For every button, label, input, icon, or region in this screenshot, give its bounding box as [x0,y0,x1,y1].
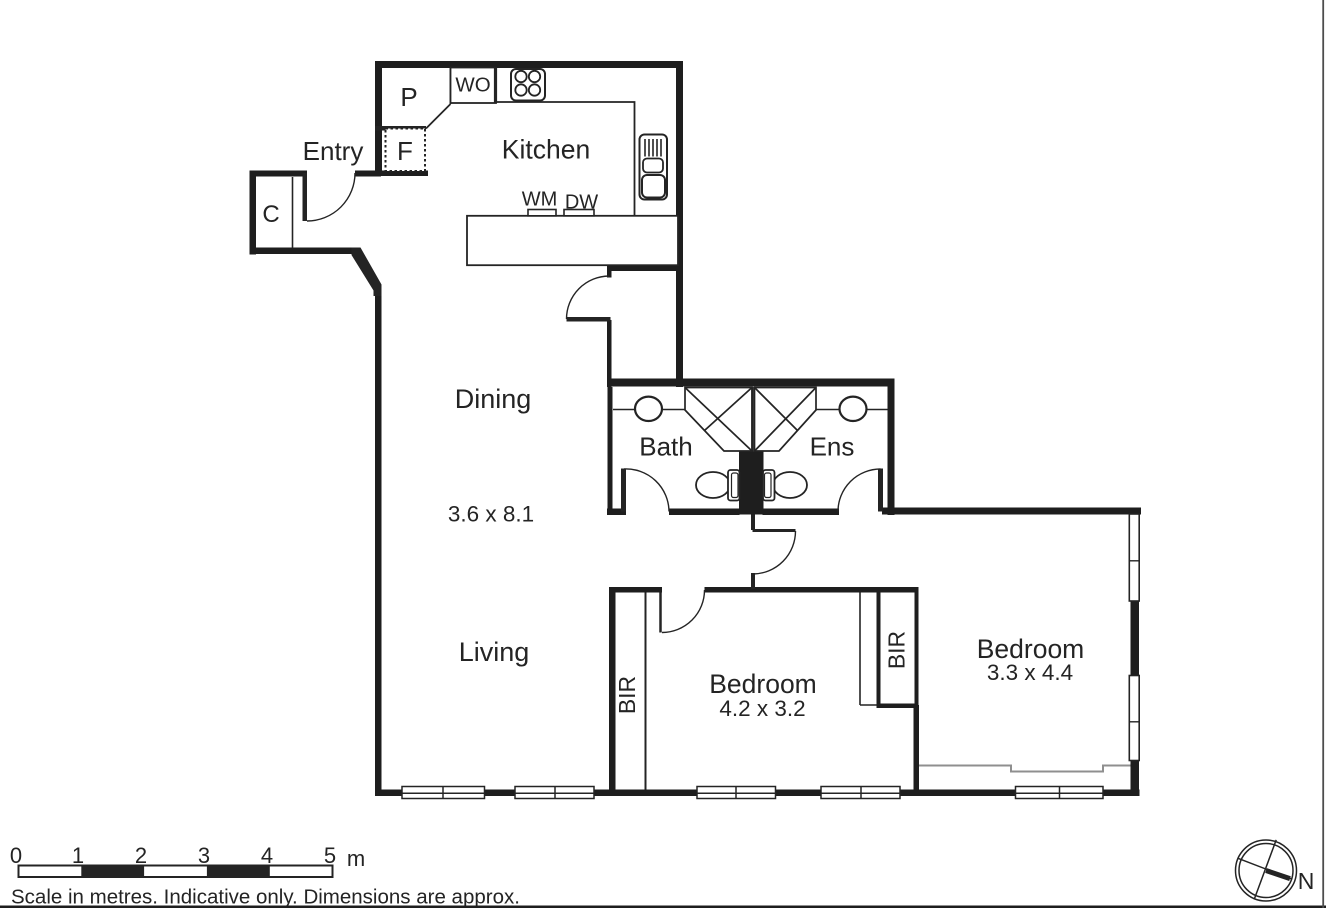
svg-text:Kitchen: Kitchen [502,135,590,165]
svg-text:P: P [400,82,417,112]
svg-text:Entry: Entry [303,136,364,166]
svg-text:1: 1 [72,843,84,868]
svg-text:C: C [262,201,279,228]
svg-text:Bath: Bath [639,432,693,462]
svg-text:Dining: Dining [455,384,532,414]
svg-text:Bedroom: Bedroom [709,669,817,699]
svg-text:BIR: BIR [614,676,640,714]
svg-text:Ens: Ens [810,432,855,462]
svg-text:WO: WO [455,74,490,97]
svg-text:WM: WM [522,189,558,211]
svg-text:4.2 x 3.2: 4.2 x 3.2 [719,696,805,721]
svg-text:F: F [397,136,413,166]
svg-text:3.3 x 4.4: 3.3 x 4.4 [987,660,1073,685]
svg-text:N: N [1298,868,1315,894]
svg-text:5: 5 [324,843,336,868]
svg-text:0: 0 [10,843,22,868]
svg-text:Living: Living [459,637,530,667]
svg-text:m: m [347,846,365,871]
svg-text:2: 2 [135,843,147,868]
svg-text:DW: DW [565,192,598,214]
svg-text:BIR: BIR [884,631,910,669]
svg-text:3.6 x 8.1: 3.6 x 8.1 [448,502,534,527]
svg-text:Scale in metres. Indicative on: Scale in metres. Indicative only. Dimens… [11,886,520,908]
svg-text:4: 4 [261,843,273,868]
svg-text:3: 3 [198,843,210,868]
